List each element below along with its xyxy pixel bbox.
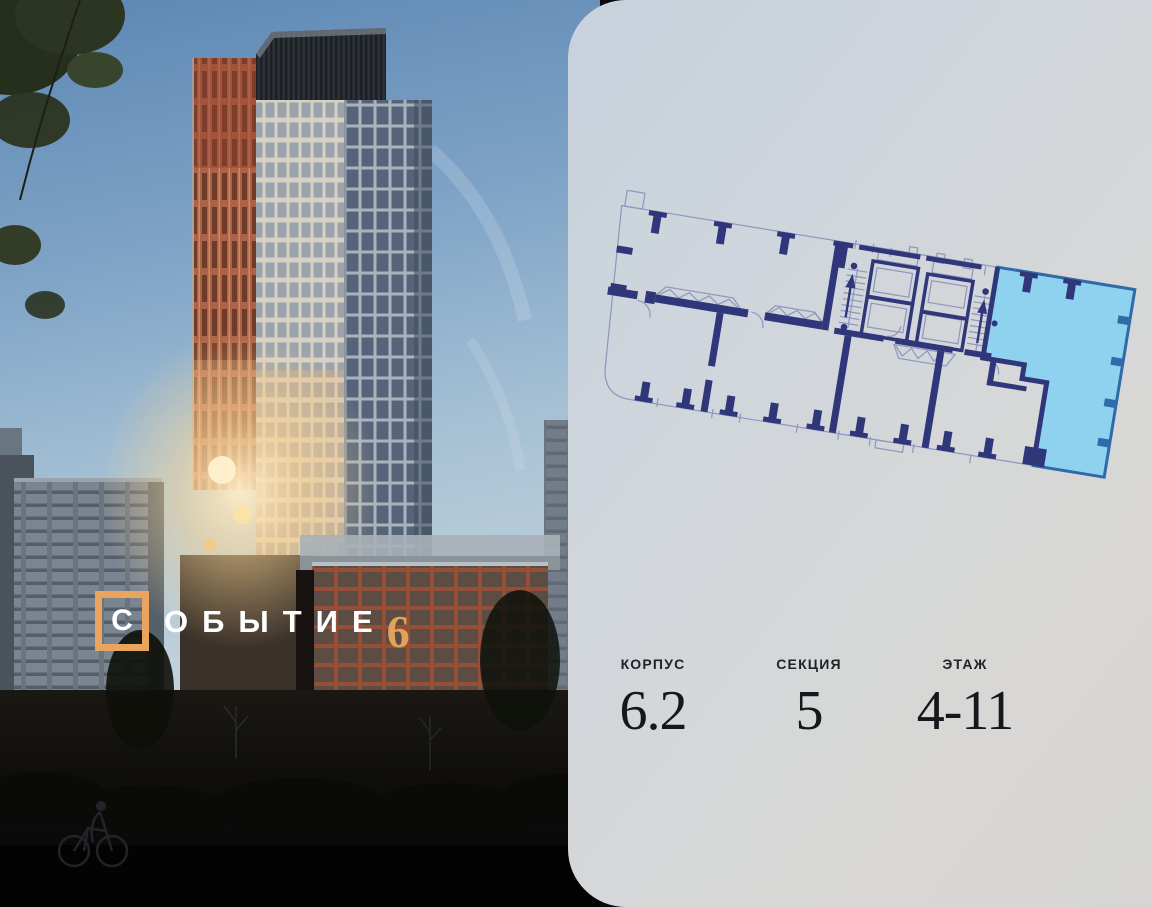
logo-number: 6: [387, 613, 410, 651]
spec-row: КОРПУС 6.2 СЕКЦИЯ 5 ЭТАЖ 4-11: [592, 656, 1026, 739]
floor-plan: [568, 184, 1152, 514]
logo-first-letter: С: [111, 606, 133, 636]
logo-letter-box: С: [95, 591, 149, 651]
spec-etazh-label: ЭТАЖ: [904, 656, 1026, 672]
spec-korpus-label: КОРПУС: [592, 656, 714, 672]
building-photo-art: [0, 0, 600, 907]
elevator-core: [861, 261, 974, 351]
logo-title: ОБЫТИЕ: [164, 606, 387, 637]
spec-korpus-value: 6.2: [592, 683, 714, 739]
building-photo: [0, 0, 600, 907]
spec-etazh: ЭТАЖ 4-11: [904, 656, 1026, 739]
floorplan-card: КОРПУС 6.2 СЕКЦИЯ 5 ЭТАЖ 4-11: [568, 0, 1152, 907]
spec-sektsiya-value: 5: [748, 683, 870, 739]
spec-korpus: КОРПУС 6.2: [592, 656, 714, 739]
spec-sektsiya-label: СЕКЦИЯ: [748, 656, 870, 672]
floor-plan-svg: [568, 184, 1152, 514]
spec-sektsiya: СЕКЦИЯ 5: [748, 656, 870, 739]
project-logo[interactable]: С ОБЫТИЕ 6: [95, 591, 410, 651]
spec-etazh-value: 4-11: [904, 683, 1026, 739]
page: С ОБЫТИЕ 6: [0, 0, 1152, 907]
